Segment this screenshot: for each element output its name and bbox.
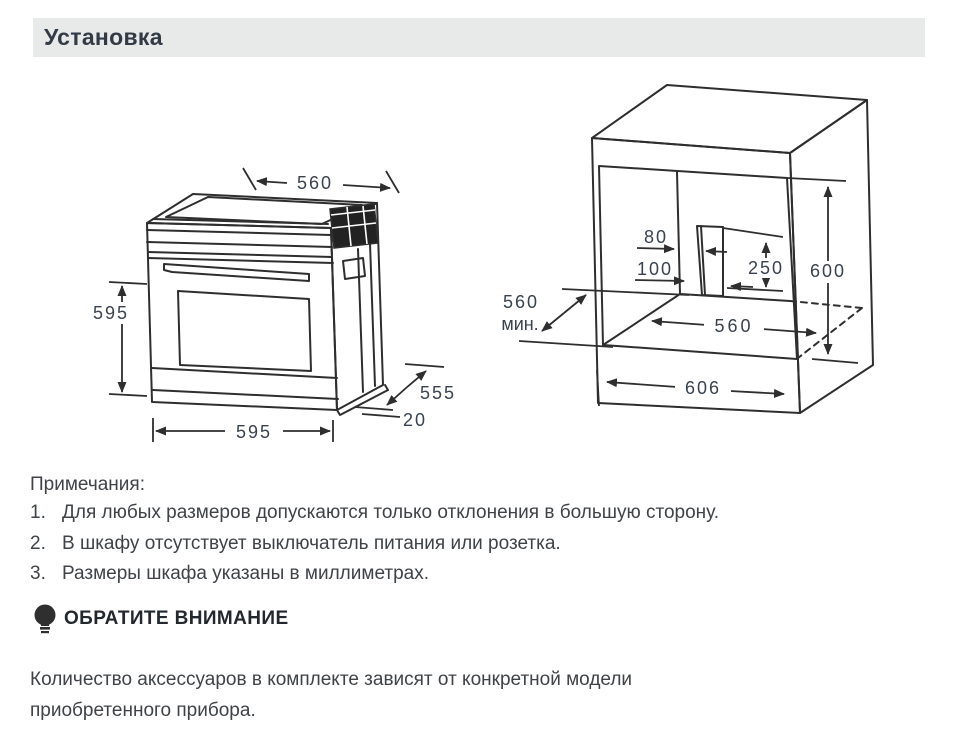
oven-side-bracket <box>343 258 365 279</box>
oven-vent-grille <box>330 204 378 248</box>
note-item-3: 3. Размеры шкафа указаны в миллиметрах. <box>30 563 910 585</box>
cabinet-dim-slot-upper-label: 80 <box>644 227 668 247</box>
cabinet-dim-slot-upper <box>637 248 727 252</box>
niche-floor-left-edge <box>603 294 680 345</box>
cabinet-dim-min-depth-value: 560 <box>503 292 539 312</box>
niche-back-left-edge <box>677 172 680 294</box>
page-title: Установка <box>33 24 163 51</box>
cabinet-dim-min-depth <box>519 289 689 347</box>
oven-dim-top-width-label: 560 <box>297 173 333 193</box>
note-text: В шкафу отсутствует выключатель питания … <box>62 533 910 555</box>
manual-page: Установка <box>0 0 960 738</box>
niche-floor-back-edge <box>680 294 790 301</box>
accessories-note: Количество аксессуаров в комплекте завис… <box>30 664 770 726</box>
notes-title: Примечания: <box>30 474 145 496</box>
cabinet-dim-niche-height-label: 600 <box>810 261 846 281</box>
note-text: Для любых размеров допускаются только от… <box>62 502 910 524</box>
cabinet-dim-outer-width-label: 606 <box>685 378 721 398</box>
cabinet-dim-min-depth-unit: мин. <box>501 314 538 334</box>
cabinet-dim-slot-height-label: 250 <box>748 258 784 278</box>
note-number: 2. <box>30 533 62 555</box>
oven-door-window <box>178 291 311 371</box>
cabinet-dimensions-diagram: 80 100 250 600 560 <box>485 75 955 460</box>
hidden-floor-edge <box>790 301 862 308</box>
cabinet-line-art <box>592 85 873 413</box>
light-bulb-icon <box>33 604 57 636</box>
oven-door-handle <box>164 264 309 281</box>
oven-dim-bottom-width-label: 595 <box>236 422 272 442</box>
note-number: 3. <box>30 563 62 585</box>
oven-dim-lip-label: 20 <box>403 410 427 430</box>
oven-dim-height <box>109 282 147 396</box>
attention-title: ОБРАТИТЕ ВНИМАНИЕ <box>64 608 289 630</box>
oven-dim-height-label: 595 <box>93 303 129 323</box>
note-item-1: 1. Для любых размеров допускаются только… <box>30 502 910 524</box>
cabinet-right-face <box>790 100 873 413</box>
note-number: 1. <box>30 502 62 524</box>
oven-dim-depth-label: 555 <box>420 383 456 403</box>
cabinet-dim-slot-lower-label: 100 <box>637 259 673 279</box>
cabinet-dim-slot-lower <box>635 280 753 287</box>
cabinet-dim-inner-width-label: 560 <box>714 316 753 336</box>
attention-heading: ОБРАТИТЕ ВНИМАНИЕ <box>33 603 289 635</box>
oven-dimensions-diagram: 560 595 595 555 20 <box>75 158 465 468</box>
section-header: Установка <box>33 18 925 57</box>
note-text: Размеры шкафа указаны в миллиметрах. <box>62 563 910 585</box>
note-item-2: 2. В шкафу отсутствует выключатель питан… <box>30 533 910 555</box>
cabinet-top-face <box>592 85 867 153</box>
